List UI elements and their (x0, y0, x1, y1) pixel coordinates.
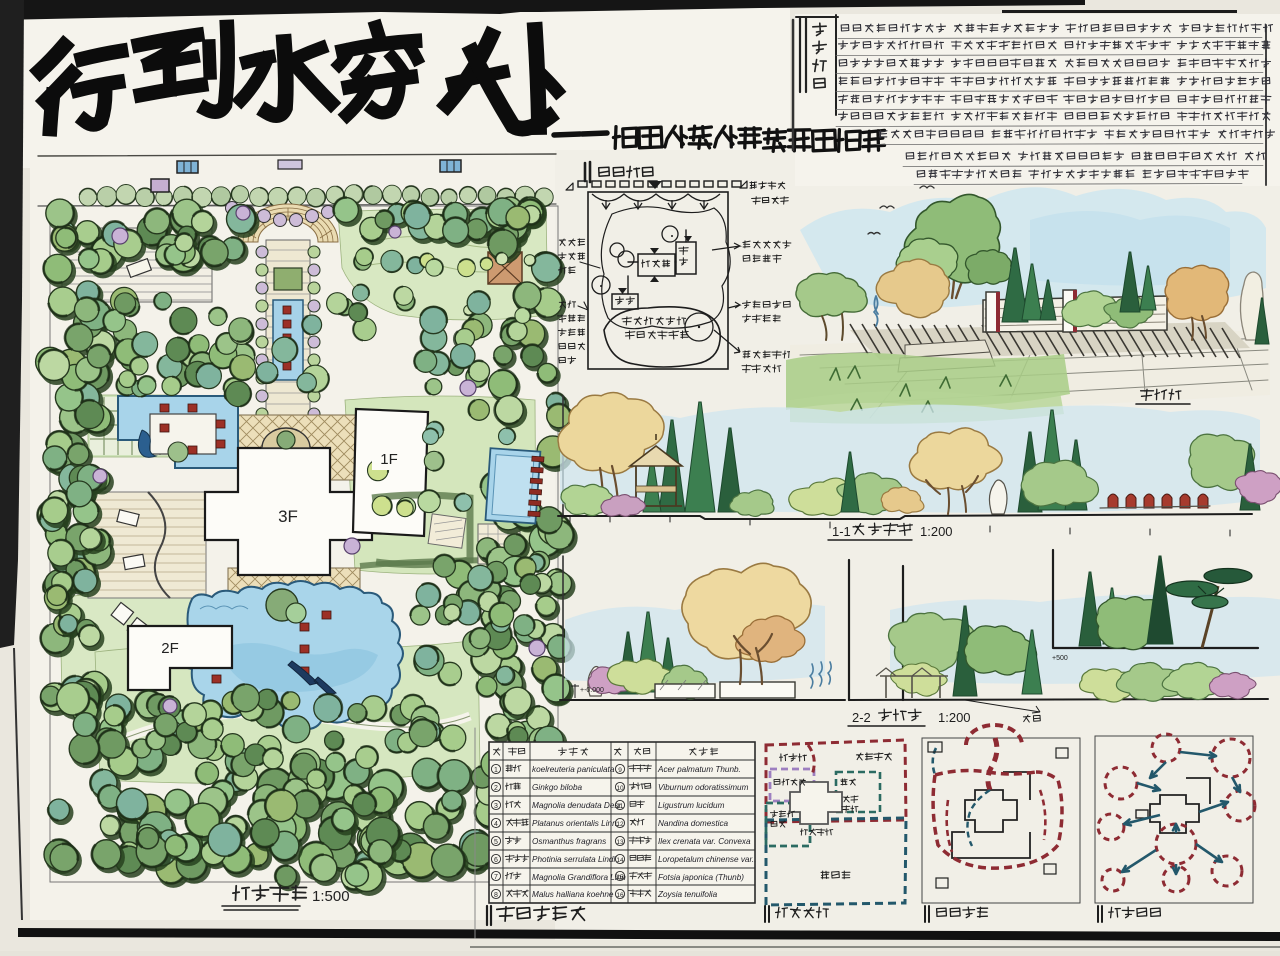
svg-text:Acer palmatum Thunb.: Acer palmatum Thunb. (657, 765, 741, 774)
svg-text:Ligustrum lucidum: Ligustrum lucidum (658, 801, 725, 810)
svg-text:15: 15 (616, 874, 624, 881)
svg-text:1:200: 1:200 (938, 710, 971, 725)
svg-text:1:500: 1:500 (312, 888, 350, 905)
svg-text:Photinia serrulata Lindl: Photinia serrulata Lindl (532, 855, 615, 864)
svg-text:13: 13 (616, 839, 624, 846)
svg-text:5: 5 (494, 839, 498, 846)
svg-text:Osmanthus fragrans: Osmanthus fragrans (532, 837, 606, 846)
svg-text:koelreuteria paniculata: koelreuteria paniculata (532, 765, 615, 774)
svg-text:Loropetalum chinense var..: Loropetalum chinense var.. (658, 855, 756, 864)
svg-text:4: 4 (494, 821, 498, 828)
svg-text:2: 2 (494, 785, 498, 792)
svg-text:2-2: 2-2 (852, 710, 871, 725)
svg-text:1F: 1F (380, 451, 398, 468)
svg-text:1-1: 1-1 (832, 524, 851, 539)
svg-text:Malus halliana koehne: Malus halliana koehne (532, 890, 614, 899)
svg-text:11: 11 (617, 803, 624, 810)
svg-text:7: 7 (494, 874, 498, 881)
svg-text:10: 10 (616, 785, 624, 792)
svg-text:Magnolia Grandiflora Linn: Magnolia Grandiflora Linn (532, 873, 626, 882)
svg-text:Ginkgo biloba: Ginkgo biloba (532, 783, 583, 792)
svg-text:14: 14 (616, 857, 624, 864)
svg-text:Ilex crenata var. Convexa: Ilex crenata var. Convexa (658, 837, 751, 846)
svg-text:12: 12 (616, 821, 624, 828)
svg-text:Viburnum odoratissimum: Viburnum odoratissimum (658, 783, 749, 792)
svg-text:Platanus orientalis Linn.: Platanus orientalis Linn. (532, 819, 619, 828)
svg-text:+-0.000: +-0.000 (580, 687, 604, 694)
svg-text:6: 6 (494, 857, 498, 864)
svg-text:1:200: 1:200 (920, 524, 953, 539)
svg-text:Nandina domestica: Nandina domestica (658, 819, 729, 828)
svg-text:Magnolia denudata Desr.: Magnolia denudata Desr. (532, 801, 623, 810)
svg-text:2F: 2F (161, 640, 179, 657)
svg-text:Zoysia tenuifolia: Zoysia tenuifolia (657, 890, 718, 899)
svg-text:9: 9 (618, 767, 622, 774)
svg-text:1: 1 (494, 767, 498, 774)
svg-text:3: 3 (494, 803, 498, 810)
svg-text:Fotsia japonica (Thunb): Fotsia japonica (Thunb) (658, 873, 744, 882)
svg-text:3F: 3F (278, 507, 298, 526)
svg-text:16: 16 (616, 892, 624, 899)
svg-text:8: 8 (494, 892, 498, 899)
svg-text:+500: +500 (1052, 655, 1068, 662)
